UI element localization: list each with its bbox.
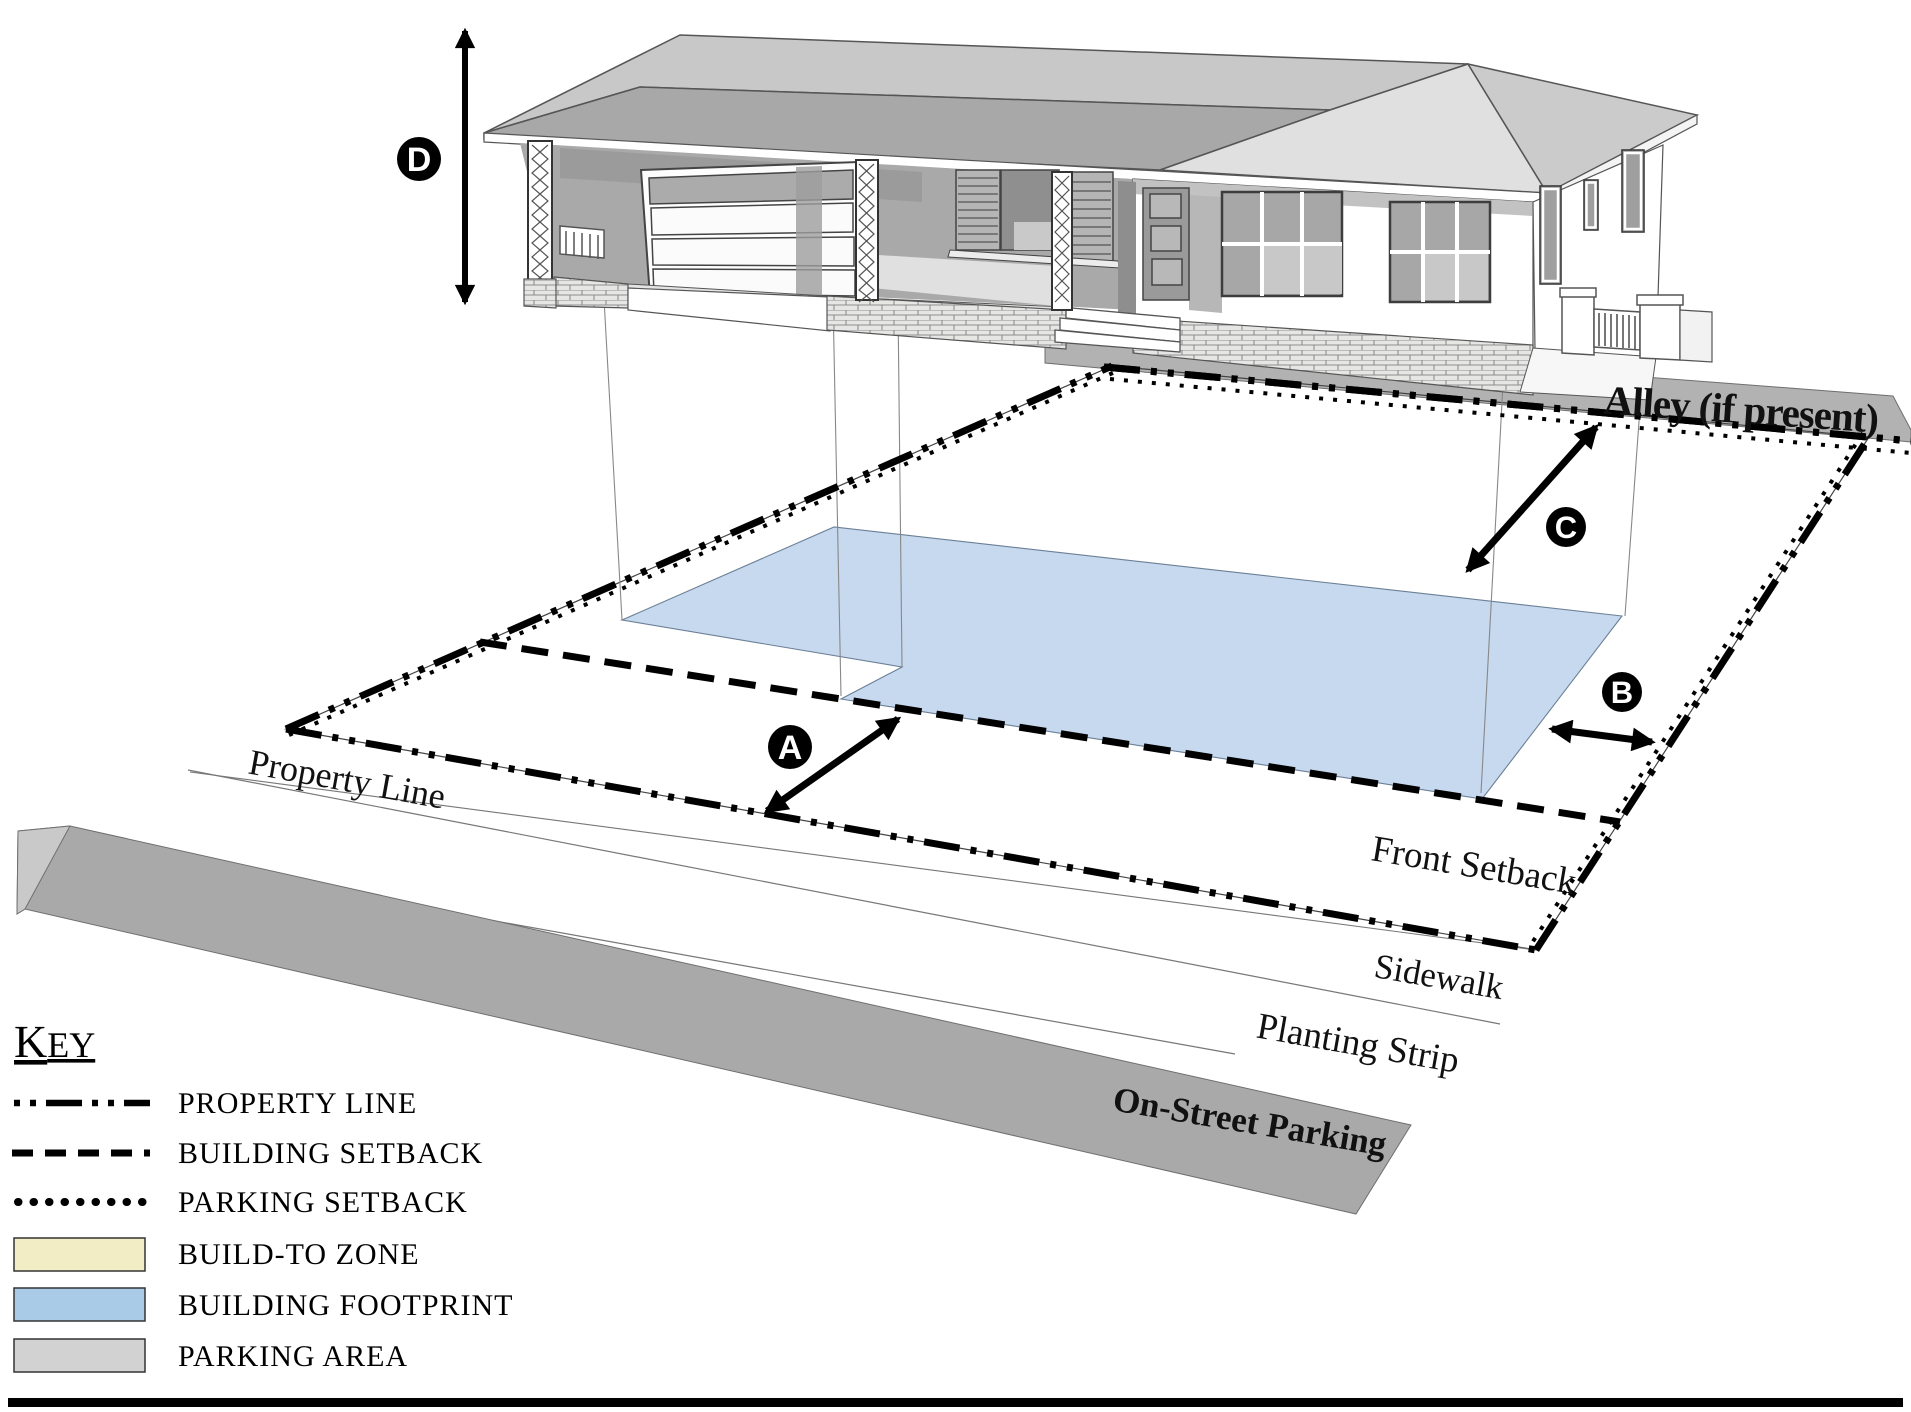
- svg-text:D: D: [407, 141, 432, 179]
- svg-text:BUILD-TO ZONE: BUILD-TO ZONE: [178, 1238, 420, 1271]
- svg-text:B: B: [1611, 675, 1633, 710]
- svg-text:PARKING SETBACK: PARKING SETBACK: [178, 1186, 468, 1219]
- svg-text:PROPERTY LINE: PROPERTY LINE: [178, 1087, 417, 1120]
- svg-text:C: C: [1555, 510, 1577, 545]
- svg-text:PARKING AREA: PARKING AREA: [178, 1340, 408, 1373]
- svg-text:Alley (if present): Alley (if present): [1602, 376, 1880, 441]
- svg-text:A: A: [778, 729, 803, 767]
- svg-text:Sidewalk: Sidewalk: [1371, 946, 1507, 1007]
- svg-text:Front Setback: Front Setback: [1369, 828, 1580, 903]
- svg-text:BUILDING SETBACK: BUILDING SETBACK: [178, 1137, 483, 1170]
- svg-text:Planting Strip: Planting Strip: [1254, 1006, 1463, 1082]
- svg-text:BUILDING FOOTPRINT: BUILDING FOOTPRINT: [178, 1289, 514, 1322]
- svg-text:KEY: KEY: [14, 1016, 95, 1067]
